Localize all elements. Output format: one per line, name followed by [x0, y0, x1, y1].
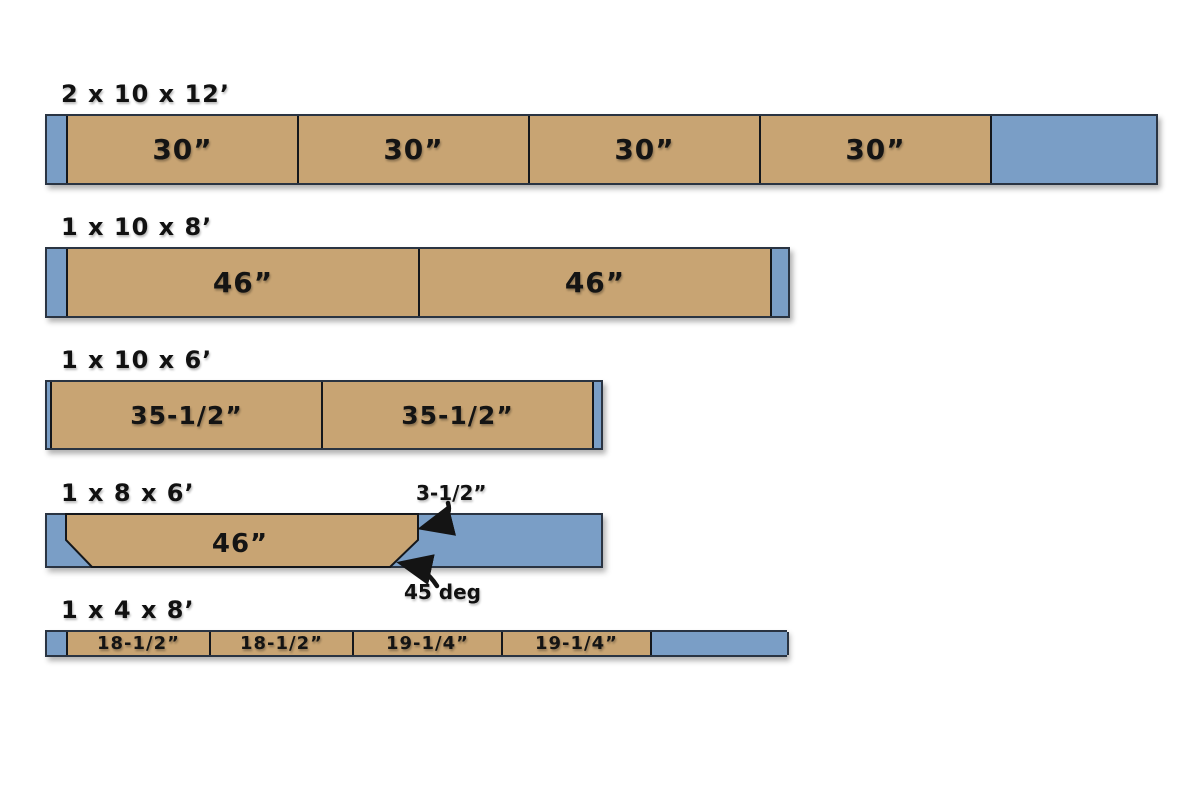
cut-segment: 35-1/2” [321, 382, 592, 448]
cut-length-label: 46” [565, 266, 625, 299]
board-end-gap [787, 632, 789, 655]
bevel-angle-label: 45 deg [404, 580, 481, 604]
cut-length-label: 30” [152, 133, 212, 166]
cut-segment: 19-1/4” [501, 632, 650, 655]
cut-length-label: 18-1/2” [97, 633, 180, 654]
board-bar: 35-1/2” 35-1/2” [45, 380, 603, 450]
board-1x4x8: 1 x 4 x 8’ 18-1/2” 18-1/2” 19-1/4” 19-1/… [45, 630, 787, 657]
board-2x10x12: 2 x 10 x 12’ 30” 30” 30” 30” [45, 114, 1158, 185]
cut-length-label: 46” [213, 266, 273, 299]
cut-segment: 46” [66, 249, 418, 316]
board-title: 1 x 4 x 8’ [61, 596, 195, 624]
waste-segment [650, 632, 787, 655]
board-bar: 46” 46” [45, 247, 790, 318]
waste-segment [770, 249, 788, 316]
waste-segment [990, 116, 1156, 183]
bevel-width-label: 3-1/2” [416, 481, 487, 505]
board-1x8x6: 1 x 8 x 6’ 46” [45, 513, 603, 568]
cut-segment: 30” [528, 116, 759, 183]
cut-length-label: 19-1/4” [386, 633, 469, 654]
cut-diagram: 2 x 10 x 12’ 30” 30” 30” 30” 1 x 10 x 8’… [0, 0, 1200, 800]
cut-length-label: 35-1/2” [130, 401, 243, 430]
beveled-board-graphic: 46” [45, 513, 603, 568]
waste-segment [47, 632, 66, 655]
cut-length-label: 30” [845, 133, 905, 166]
bevel-width-arrow [426, 503, 449, 527]
board-bar: 30” 30” 30” 30” [45, 114, 1158, 185]
board-1x10x8: 1 x 10 x 8’ 46” 46” [45, 247, 790, 318]
waste-segment [592, 382, 601, 448]
waste-segment [47, 116, 66, 183]
board-bar: 18-1/2” 18-1/2” 19-1/4” 19-1/4” [45, 630, 787, 657]
board-title: 1 x 10 x 8’ [61, 213, 212, 241]
cut-length-label: 30” [383, 133, 443, 166]
cut-segment: 30” [66, 116, 297, 183]
board-1x10x6: 1 x 10 x 6’ 35-1/2” 35-1/2” [45, 380, 603, 450]
board-title: 1 x 8 x 6’ [61, 479, 195, 507]
board-title: 2 x 10 x 12’ [61, 80, 230, 108]
cut-length-label: 46” [212, 529, 268, 559]
cut-segment: 18-1/2” [209, 632, 352, 655]
cut-length-label: 18-1/2” [240, 633, 323, 654]
cut-segment: 30” [297, 116, 528, 183]
cut-length-label: 30” [614, 133, 674, 166]
cut-segment: 30” [759, 116, 990, 183]
waste-segment [47, 249, 66, 316]
cut-segment: 35-1/2” [50, 382, 321, 448]
cut-segment: 19-1/4” [352, 632, 501, 655]
cut-length-label: 19-1/4” [535, 633, 618, 654]
board-title: 1 x 10 x 6’ [61, 346, 212, 374]
cut-segment: 46” [418, 249, 770, 316]
cut-segment: 18-1/2” [66, 632, 209, 655]
cut-length-label: 35-1/2” [401, 401, 514, 430]
